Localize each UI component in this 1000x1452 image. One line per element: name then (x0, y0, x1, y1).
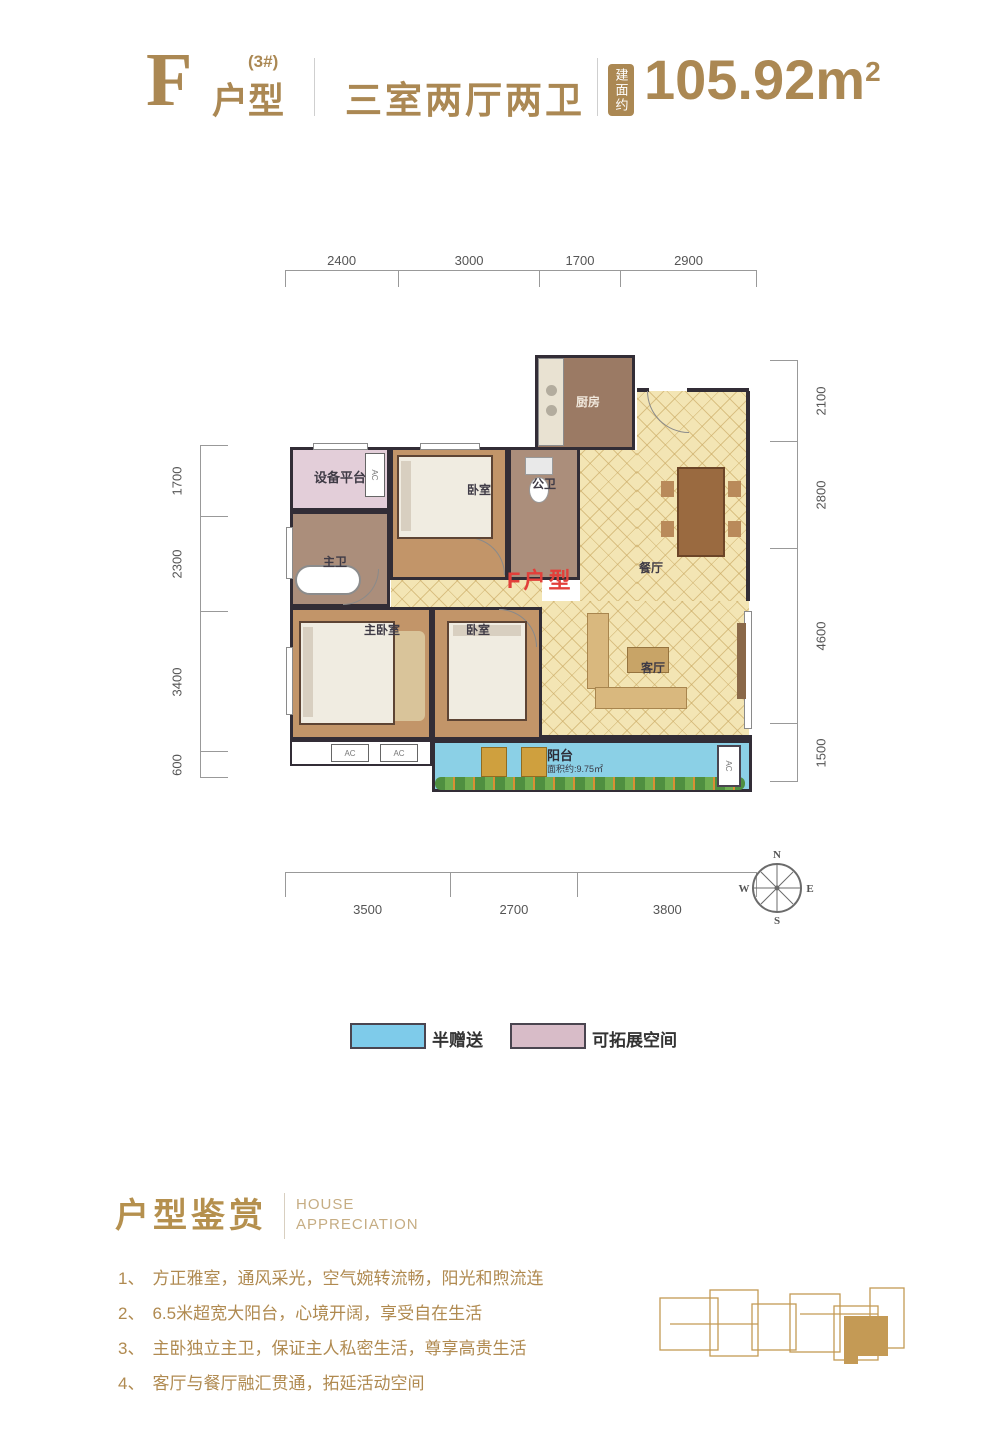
wall-segment (746, 391, 750, 601)
ac-label: AC (332, 745, 368, 761)
dim-segment: 600 (201, 751, 228, 778)
unit-type-watermark: F户型 (507, 563, 573, 595)
room-layout-text: 三室两厅两卫 (345, 70, 585, 124)
window (420, 443, 480, 450)
dining-area (580, 450, 637, 601)
dim-label: 2700 (450, 897, 577, 921)
floor-plan: AC AC AC AC 厨房 餐厅 设备平台 卧室 公卫 主卫 主卧室 卧室 客… (285, 355, 757, 800)
dim-label: 1700 (170, 466, 185, 495)
appreciation-title-en1: HOUSE (296, 1196, 354, 1213)
sofa-icon (587, 613, 609, 689)
dim-segment: 2800 (770, 441, 797, 548)
master-bath-label: 主卫 (307, 553, 363, 570)
wall-segment (687, 388, 749, 392)
dim-label: 2300 (170, 549, 185, 578)
wall-segment (540, 735, 752, 740)
dim-label: 2800 (814, 480, 829, 509)
dim-line (285, 872, 757, 897)
item-number: 2、 (118, 1304, 144, 1323)
toilet-tank-icon (525, 457, 553, 475)
ac-unit: AC (331, 744, 369, 762)
bedroom-label: 卧室 (448, 621, 508, 638)
dim-segment: 2100 (770, 360, 797, 441)
ac-label: AC (381, 745, 417, 761)
item-text: 6.5米超宽大阳台，心境开阔，享受自在生活 (152, 1304, 482, 1323)
dining-chair (661, 521, 674, 537)
bedroom-label: 卧室 (453, 481, 505, 498)
dim-line (285, 270, 757, 287)
window (286, 647, 293, 715)
dining-chair (728, 481, 741, 497)
ac-label: AC (710, 756, 748, 776)
building-key-plan (648, 1270, 913, 1375)
legend-label-half-gift: 半赠送 (432, 1026, 483, 1051)
dim-label: 600 (170, 754, 185, 776)
dining-label: 餐厅 (621, 559, 681, 576)
dim-segment: 1700 (201, 445, 228, 516)
dim-label: 4600 (814, 621, 829, 650)
item-text: 客厅与餐厅融汇贯通，拓延活动空间 (152, 1374, 424, 1393)
master-bedroom-label: 主卧室 (343, 621, 421, 638)
pillow-icon (401, 461, 411, 531)
unit-type-letter: F (146, 42, 192, 118)
area-number: 105.92m (644, 48, 865, 111)
dim-label: 2900 (620, 250, 757, 270)
header-divider (597, 58, 598, 116)
compass-west-label: W (739, 883, 750, 895)
appreciation-item: 4、客厅与餐厅融汇贯通，拓延活动空间 (118, 1369, 424, 1394)
dim-numbers-row: 3500 2700 3800 (285, 897, 757, 921)
dim-segment: 3400 (201, 611, 228, 751)
sofa-icon (595, 687, 687, 709)
area-superscript: 2 (865, 56, 881, 87)
item-number: 1、 (118, 1269, 144, 1288)
item-text: 主卧独立主卫，保证主人私密生活，尊享高贵生活 (152, 1339, 526, 1358)
dim-segment: 4600 (770, 548, 797, 723)
floorplan-page: F (3#) 户型 三室两厅两卫 建面约 105.92m2 2400 3000 … (0, 0, 1000, 1452)
living-label: 客厅 (623, 659, 683, 676)
appreciation-item: 1、方正雅室，通风采光，空气婉转流畅，阳光和煦流连 (118, 1264, 543, 1289)
item-text: 方正雅室，通风采光，空气婉转流畅，阳光和煦流连 (152, 1269, 543, 1288)
dining-chair (661, 481, 674, 497)
pillow-icon (303, 627, 313, 717)
legend-label-expandable: 可拓展空间 (592, 1026, 677, 1051)
compass-east-label: E (806, 883, 813, 895)
dim-tick-segment (621, 271, 757, 287)
appreciation-title: 户型鉴赏 (115, 1188, 267, 1237)
area-value: 105.92m2 (644, 52, 881, 108)
dim-tick-segment (451, 873, 578, 897)
dim-label: 3800 (578, 897, 757, 921)
dim-label: 3000 (398, 250, 540, 270)
dim-segment: 2300 (201, 516, 228, 611)
header-divider (314, 58, 315, 116)
dim-label: 2100 (814, 386, 829, 415)
window (286, 527, 293, 579)
item-number: 4、 (118, 1374, 144, 1393)
kitchen-label: 厨房 (553, 393, 623, 410)
ac-unit: AC (717, 745, 741, 787)
dim-tick-segment (285, 873, 451, 897)
window (313, 443, 368, 450)
dim-label: 3500 (285, 897, 450, 921)
legend-swatch-half-gift (350, 1023, 426, 1049)
tv-cabinet-icon (737, 623, 746, 699)
plants-icon (435, 777, 745, 790)
dim-segment: 1500 (770, 723, 797, 782)
dimension-bottom: 3500 2700 3800 (285, 872, 757, 921)
compass-south-label: S (774, 915, 780, 926)
appreciation-item: 2、6.5米超宽大阳台，心境开阔，享受自在生活 (118, 1299, 482, 1324)
area-badge: 建面约 (608, 64, 634, 116)
item-number: 3、 (118, 1339, 144, 1358)
building-number: (3#) (248, 52, 278, 72)
dining-chair (728, 521, 741, 537)
dim-tick-segment (285, 271, 399, 287)
dim-tick-segment (540, 271, 620, 287)
dining-table (677, 467, 725, 557)
dimension-top: 2400 3000 1700 2900 (285, 250, 757, 287)
highlighted-unit (844, 1316, 888, 1364)
dimension-right: 2100 2800 4600 1500 (770, 360, 798, 782)
lounge-chair-icon (481, 747, 507, 777)
lounge-chair-icon (521, 747, 547, 777)
ac-unit: AC (380, 744, 418, 762)
dim-label: 2400 (285, 250, 398, 270)
compass-north-label: N (773, 849, 781, 861)
public-bath-label: 公卫 (515, 475, 573, 492)
dimension-left: 1700 2300 3400 600 (200, 445, 228, 778)
dim-label: 1700 (540, 250, 620, 270)
dim-label: 3400 (170, 667, 185, 696)
appreciation-item: 3、主卧独立主卫，保证主人私密生活，尊享高贵生活 (118, 1334, 526, 1359)
appreciation-title-en2: APPRECIATION (296, 1216, 419, 1233)
title-divider (284, 1193, 285, 1239)
dim-tick-segment (399, 271, 540, 287)
legend-swatch-expandable (510, 1023, 586, 1049)
dim-tick-segment (578, 873, 757, 897)
dim-label: 1500 (814, 738, 829, 767)
dim-numbers-row: 2400 3000 1700 2900 (285, 250, 757, 270)
equipment-platform-label: 设备平台 (293, 467, 387, 486)
balcony-area-label: 面积约:9.75㎡ (547, 762, 657, 775)
compass-rose: N S W E (737, 846, 817, 926)
unit-type-label: 户型 (212, 72, 284, 124)
